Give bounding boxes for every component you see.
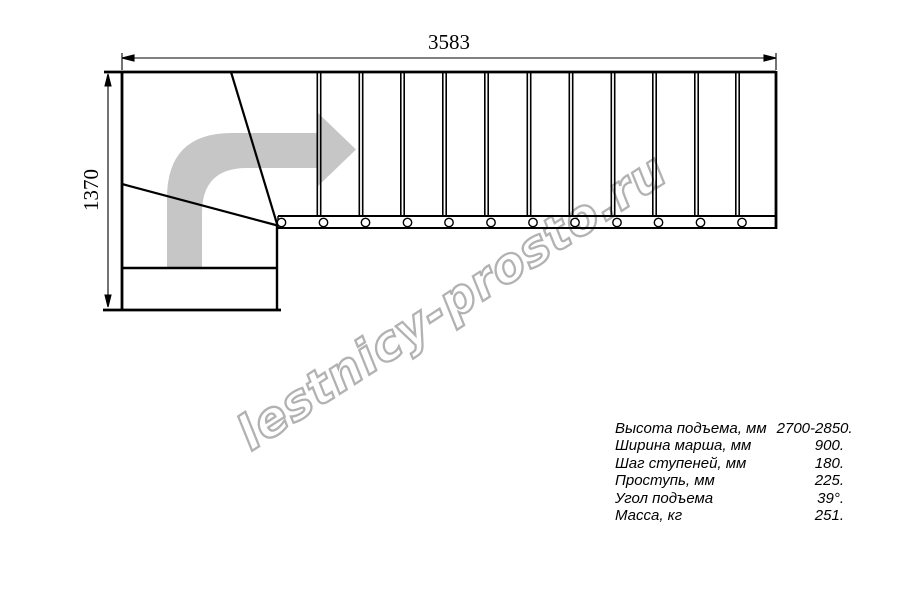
spec-table: Высота подъема, мм 2700-2850. Ширина мар… bbox=[615, 420, 844, 524]
spec-value: 180. bbox=[805, 455, 844, 472]
spec-row-height: Высота подъема, мм 2700-2850. bbox=[615, 420, 844, 437]
dimension-label-depth: 1370 bbox=[79, 145, 103, 235]
spec-value: 251. bbox=[805, 507, 844, 524]
spec-value: 2700-2850. bbox=[767, 420, 853, 437]
spec-row-flight-width: Ширина марша, мм 900. bbox=[615, 437, 844, 454]
spec-value: 225. bbox=[805, 472, 844, 489]
spec-value: 900. bbox=[805, 437, 844, 454]
spec-label: Угол подъема bbox=[615, 490, 713, 507]
spec-label: Ширина марша, мм bbox=[615, 437, 751, 454]
spec-row-mass: Масса, кг 251. bbox=[615, 507, 844, 524]
climb-direction-arrow-icon bbox=[167, 112, 356, 268]
stringer-fastener-circles bbox=[277, 218, 746, 226]
tread-dividers bbox=[317, 73, 739, 215]
spec-row-step-rise: Шаг ступеней, мм 180. bbox=[615, 455, 844, 472]
spec-label: Масса, кг bbox=[615, 507, 682, 524]
spec-row-climb-angle: Угол подъема 39°. bbox=[615, 490, 844, 507]
spec-label: Проступь, мм bbox=[615, 472, 715, 489]
spec-value: 39°. bbox=[807, 490, 844, 507]
top-dimension-line bbox=[122, 53, 776, 70]
left-dimension-line bbox=[105, 74, 111, 307]
spec-row-tread-depth: Проступь, мм 225. bbox=[615, 472, 844, 489]
spec-label: Шаг ступеней, мм bbox=[615, 455, 746, 472]
dimension-label-width: 3583 bbox=[394, 30, 504, 55]
stair-drawing-canvas: lestnicy-prosto.ru bbox=[0, 0, 900, 600]
spec-label: Высота подъема, мм bbox=[615, 420, 767, 437]
